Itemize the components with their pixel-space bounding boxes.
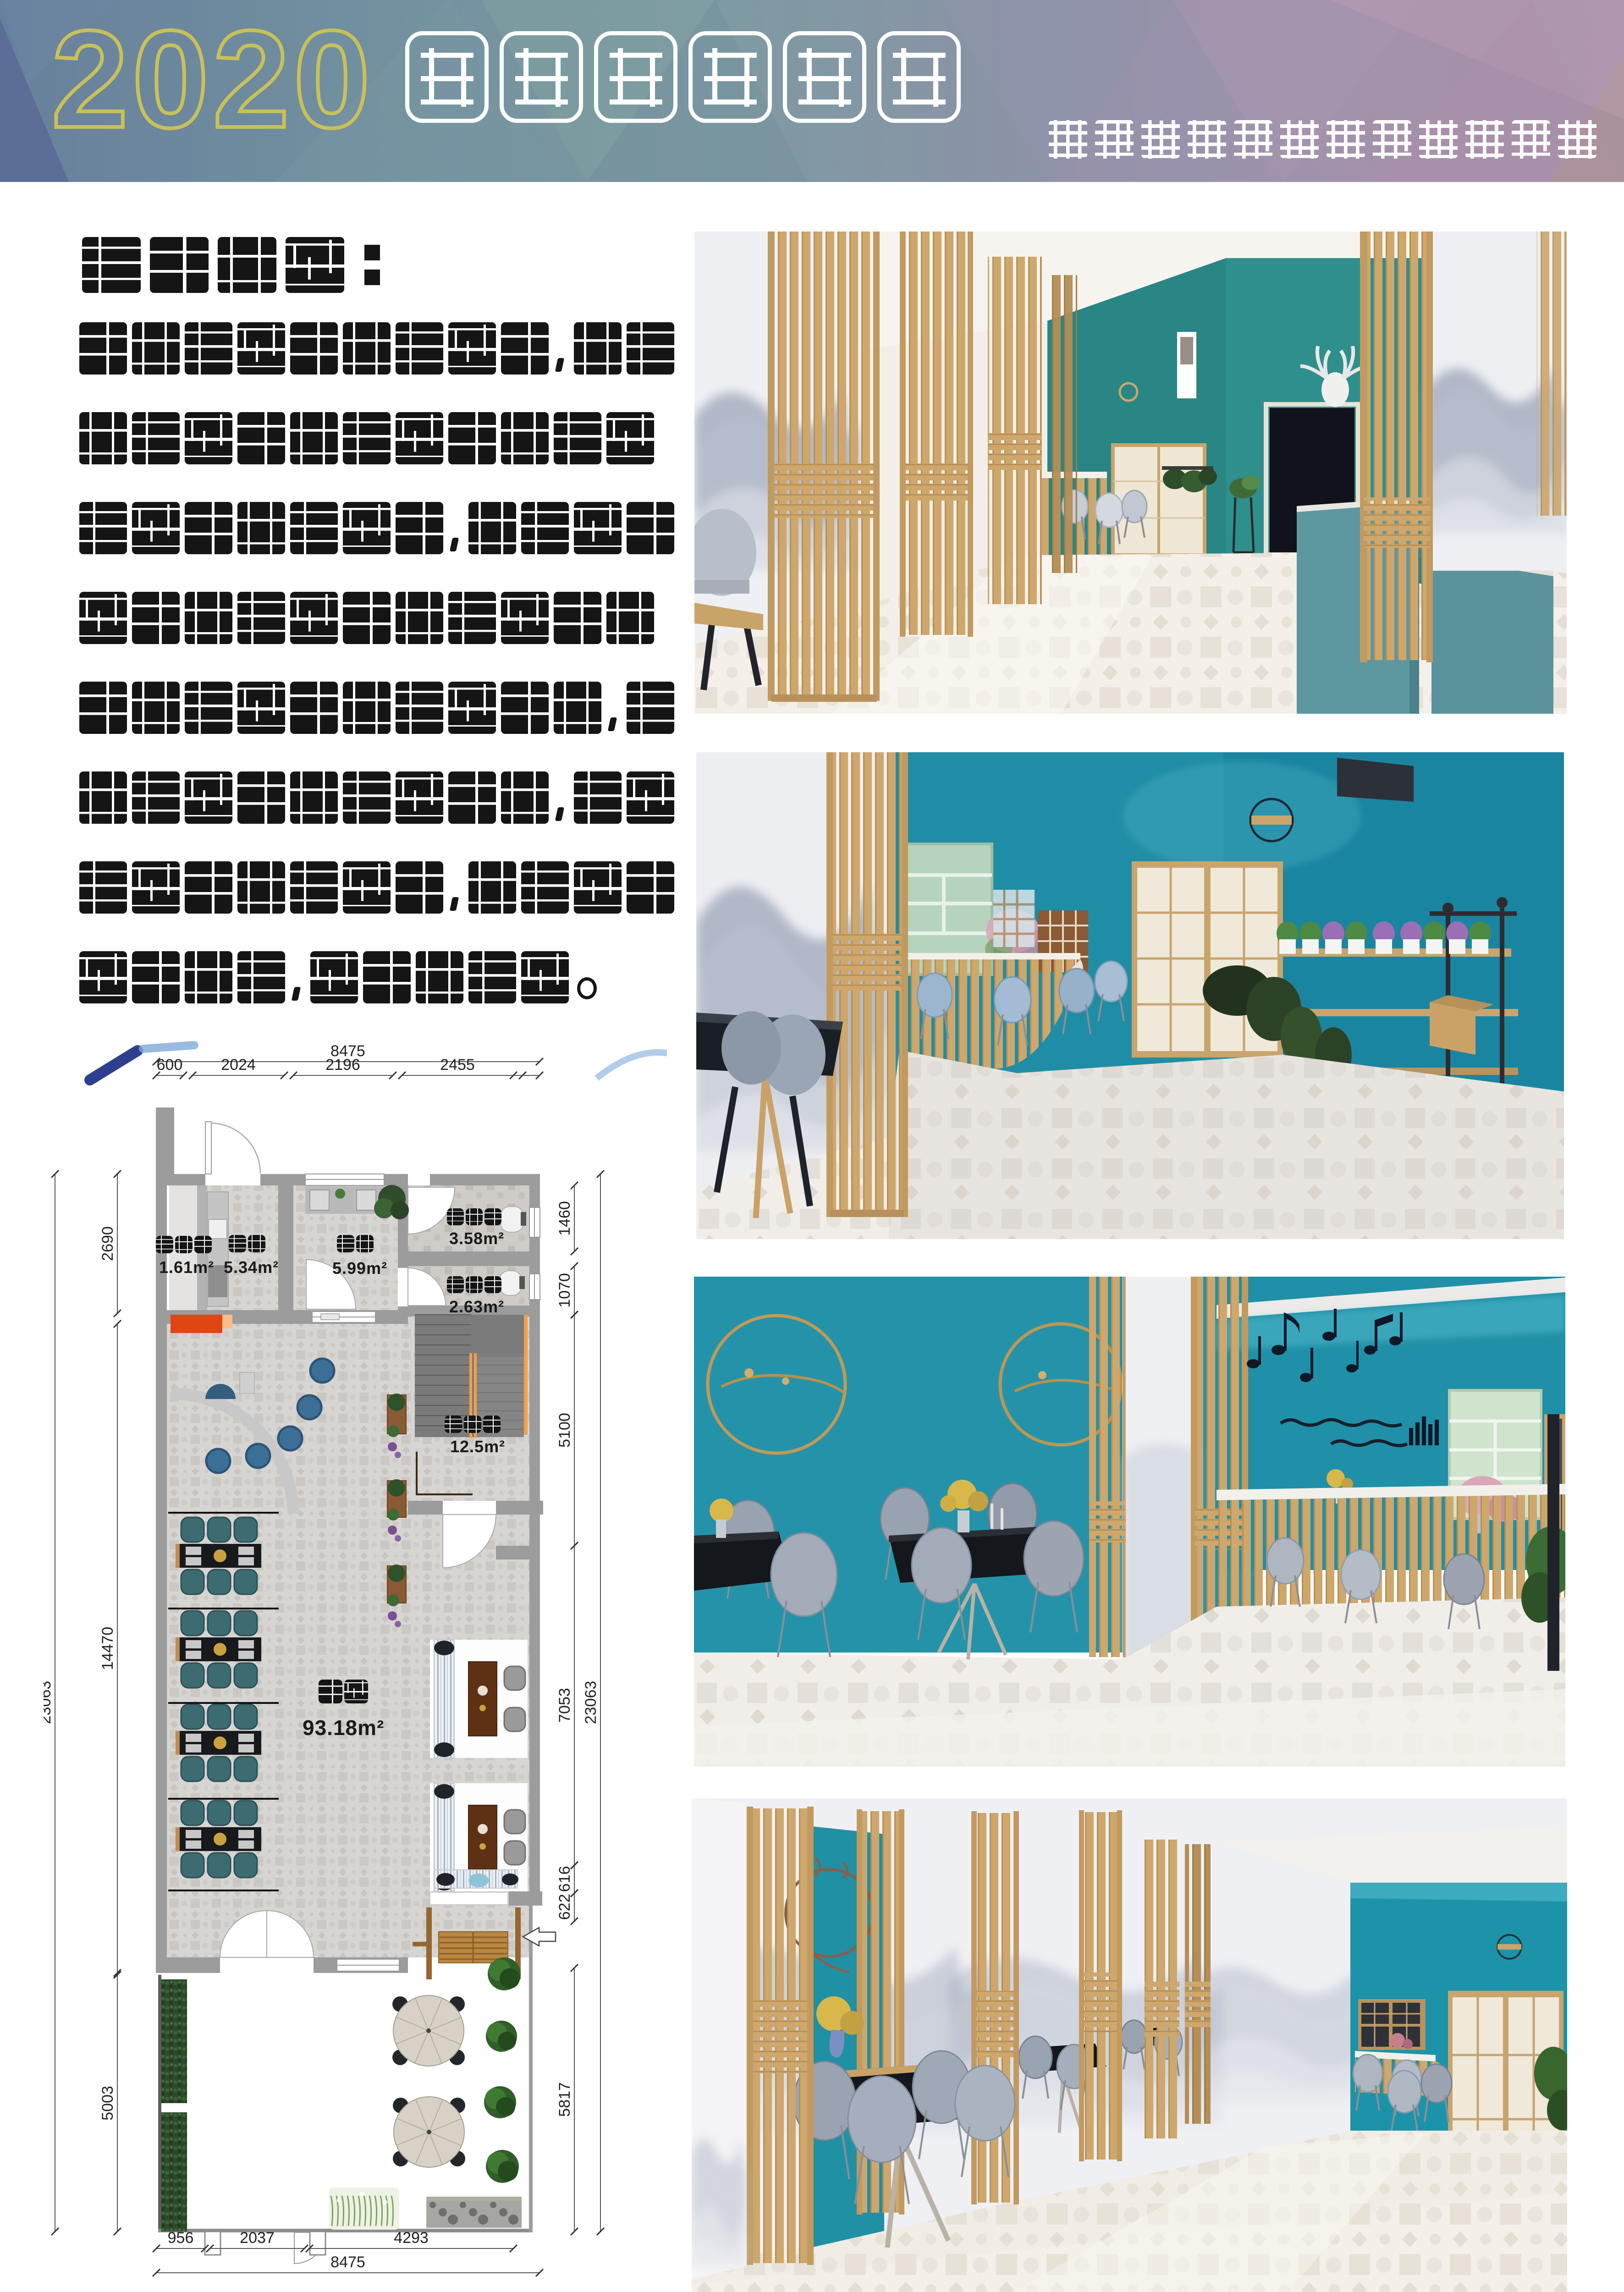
svg-text:5100: 5100 bbox=[556, 1413, 573, 1448]
svg-text:8475: 8475 bbox=[330, 2253, 365, 2271]
svg-text:2455: 2455 bbox=[440, 1056, 475, 1074]
svg-text:1460: 1460 bbox=[556, 1201, 573, 1236]
svg-text:23063: 23063 bbox=[582, 1681, 600, 1725]
svg-text:1070: 1070 bbox=[556, 1273, 573, 1308]
svg-text:4293: 4293 bbox=[394, 2229, 429, 2247]
svg-text:616: 616 bbox=[556, 1866, 573, 1892]
svg-text:956: 956 bbox=[168, 2229, 194, 2247]
svg-text:600: 600 bbox=[157, 1056, 183, 1074]
svg-text:5003: 5003 bbox=[99, 2086, 116, 2121]
svg-text:2024: 2024 bbox=[221, 1056, 256, 1074]
svg-text:2196: 2196 bbox=[325, 1056, 360, 1074]
svg-text:2037: 2037 bbox=[240, 2229, 275, 2247]
svg-text:23063: 23063 bbox=[44, 1681, 54, 1725]
svg-text:7053: 7053 bbox=[556, 1688, 573, 1723]
svg-text:14470: 14470 bbox=[99, 1627, 116, 1670]
svg-text:2690: 2690 bbox=[99, 1226, 116, 1261]
svg-text:5817: 5817 bbox=[556, 2082, 573, 2117]
svg-text:622: 622 bbox=[556, 1894, 573, 1920]
